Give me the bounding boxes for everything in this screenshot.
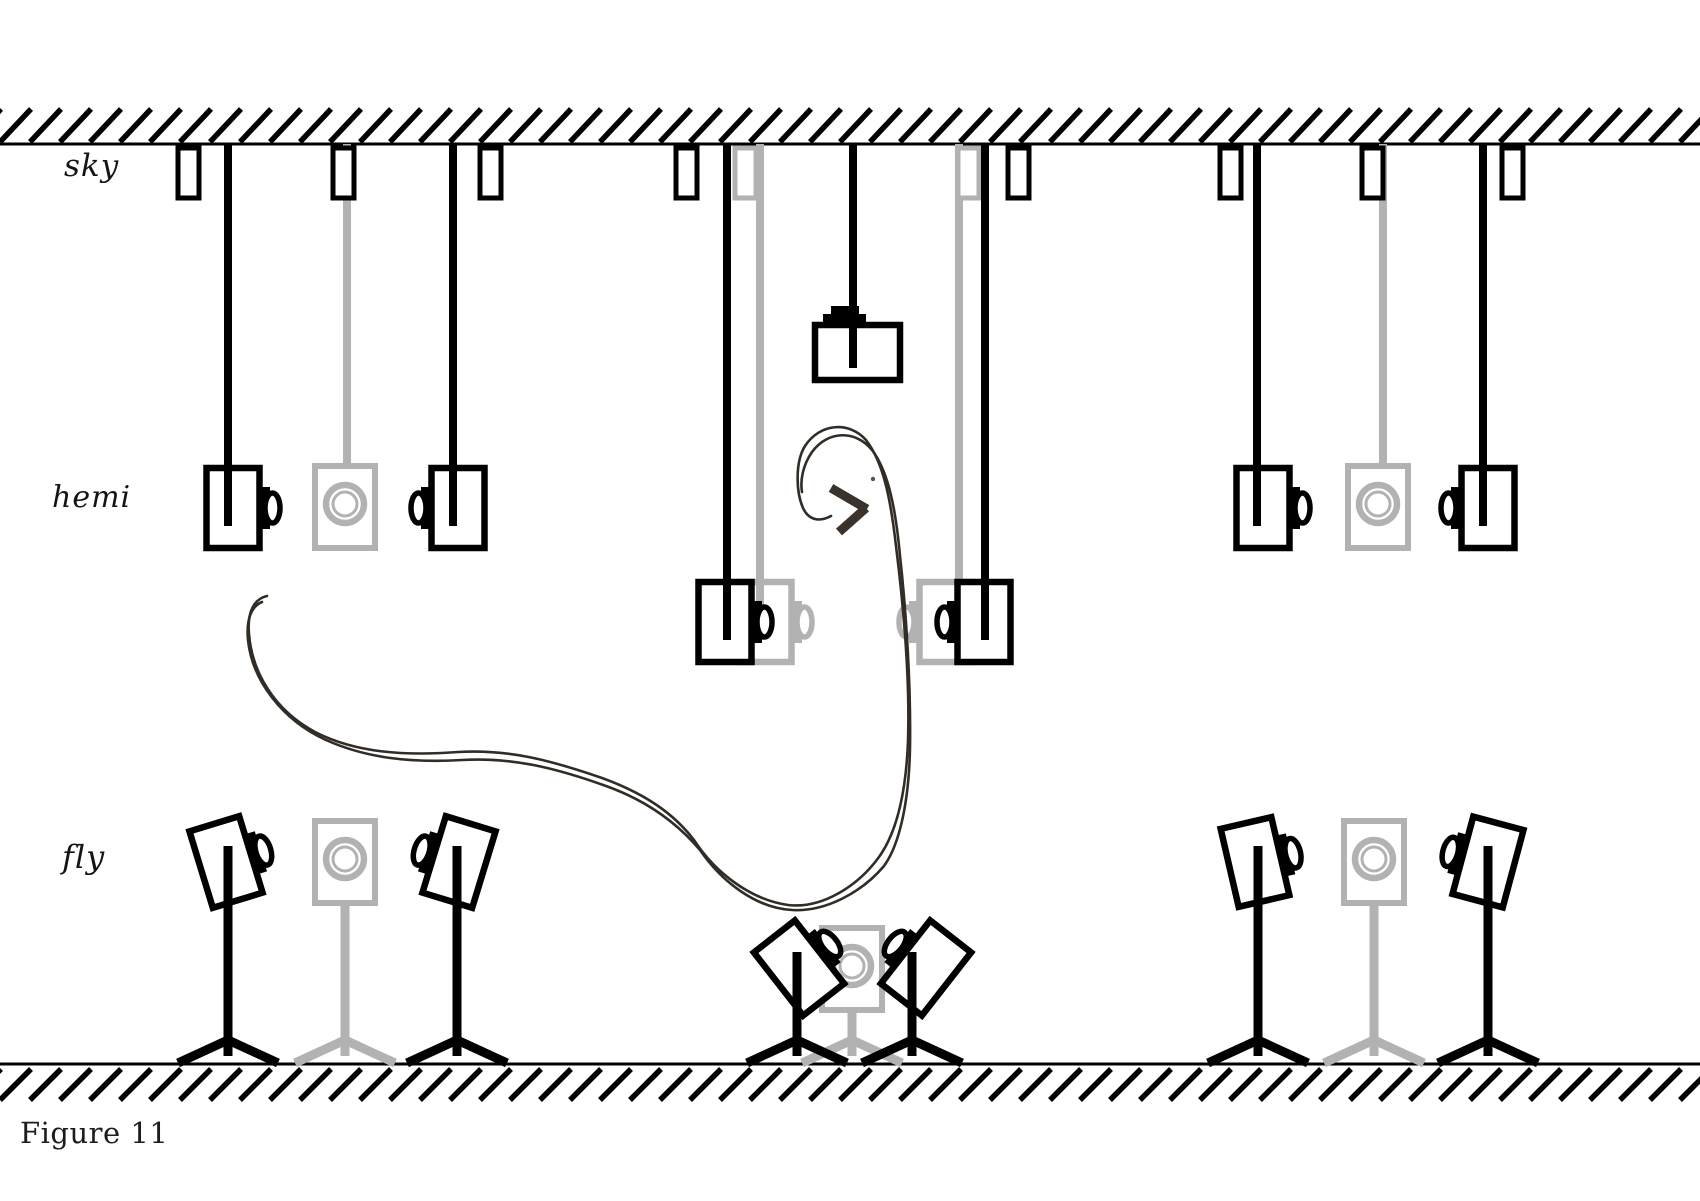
ceiling-mount: [178, 148, 199, 198]
ceiling-mount: [480, 148, 501, 198]
lens-icon: [797, 607, 812, 637]
lens-icon: [1295, 493, 1310, 523]
hanging-speaker: [1348, 466, 1408, 548]
tripod-stand: [1208, 846, 1308, 1063]
figure-canvas: sky hemi fly Figure 11: [0, 0, 1700, 1201]
lens-icon: [265, 493, 280, 523]
tripod-camera: [189, 810, 282, 908]
sky-label: sky: [64, 148, 119, 184]
hanging-camera: [411, 468, 485, 548]
hanging-camera: [207, 468, 281, 548]
tripod-camera: [1221, 813, 1310, 907]
tripod-stand: [407, 846, 507, 1063]
tripod-speaker: [315, 821, 375, 903]
tripod-stand: [1438, 846, 1538, 1063]
flight-room-diagram: [0, 0, 1700, 1201]
floor-hatching: [0, 1069, 1700, 1100]
tripod-camera: [1433, 811, 1524, 907]
tripod-stand: [1324, 901, 1424, 1063]
tripod-stand: [178, 846, 278, 1063]
hanging-rods: [228, 144, 1483, 640]
ceiling-mount: [1220, 148, 1241, 198]
hanging-speaker: [315, 466, 375, 548]
figure-caption: Figure 11: [20, 1116, 168, 1150]
lens-icon: [937, 607, 952, 637]
lens-icon: [757, 607, 772, 637]
ceiling-mount: [1008, 148, 1029, 198]
tripod-speaker: [1344, 821, 1404, 903]
ceiling-mount: [1502, 148, 1523, 198]
hanging-rods-gray: [347, 144, 1383, 640]
ceiling-mount: [333, 148, 354, 198]
fly-label: fly: [62, 838, 105, 876]
ceiling-hatching: [0, 109, 1700, 142]
lens-icon: [1441, 493, 1456, 523]
ceiling-mount: [676, 148, 697, 198]
ceiling-camera: [815, 306, 900, 380]
tripod-stand: [295, 901, 395, 1063]
hanging-camera: [1441, 468, 1515, 548]
tripod-camera: [403, 810, 496, 908]
hemi-label: hemi: [52, 480, 131, 515]
ceiling-mount: [958, 148, 979, 198]
ceiling-mount: [1362, 148, 1383, 198]
lens-icon: [411, 493, 426, 523]
hanging-camera: [1237, 468, 1311, 548]
bat-symbol: [831, 488, 867, 532]
ceiling-mount: [735, 148, 756, 198]
